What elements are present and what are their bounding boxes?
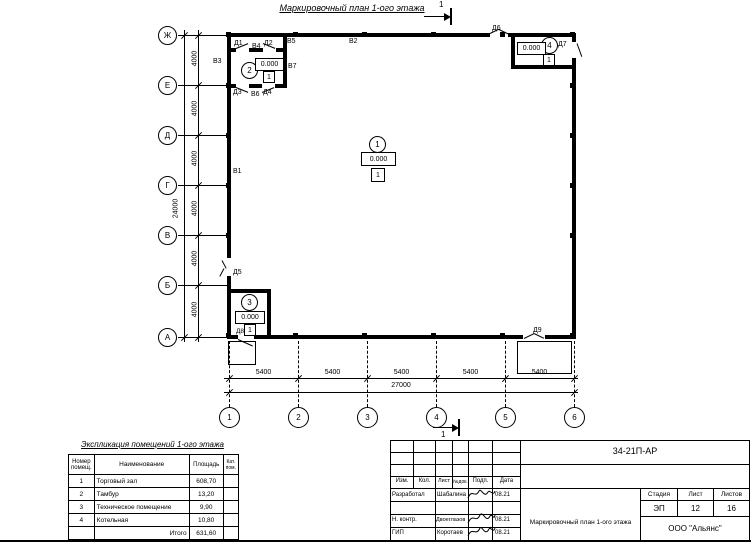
wall-tech-right xyxy=(267,289,271,339)
axis-circle-1: 1 xyxy=(219,407,240,428)
date-1: 08.21 xyxy=(495,517,510,523)
col-izm: Изм. xyxy=(391,478,413,484)
row-cat xyxy=(223,501,238,514)
axis-line-d xyxy=(178,135,227,136)
row-cat xyxy=(223,475,238,488)
column-marker xyxy=(570,233,575,238)
role-0: Разработал xyxy=(392,492,425,498)
row-area: 9,90 xyxy=(189,501,223,514)
room-elevation-1: 0.000 xyxy=(361,152,396,166)
col-kol: Кол. xyxy=(414,478,435,484)
column-marker xyxy=(570,333,575,338)
axis-ext-4 xyxy=(436,341,437,407)
axis-circle-g: Г xyxy=(158,176,177,195)
total-empty xyxy=(69,527,95,540)
tb-line xyxy=(640,516,750,517)
company: ООО "Альянс" xyxy=(641,524,749,533)
door-gap-d1 xyxy=(236,48,249,52)
dim-4000: 4000 xyxy=(192,147,199,171)
col-num: Номер помещ. xyxy=(69,455,95,475)
column-marker xyxy=(362,32,367,37)
tb-line xyxy=(390,464,750,465)
axis-ext-6 xyxy=(574,341,575,407)
row-num: 3 xyxy=(69,501,95,514)
row-name: Котельная xyxy=(94,514,189,527)
column-marker xyxy=(570,32,575,37)
axis-circle-4: 4 xyxy=(426,407,447,428)
dim-5400: 5400 xyxy=(527,369,552,376)
tb-line xyxy=(390,476,520,477)
axis-ext-3 xyxy=(367,341,368,407)
col-area: Площадь xyxy=(189,455,223,475)
mark-v4: В4 xyxy=(252,43,261,51)
axis-line-b xyxy=(178,285,227,286)
column-marker xyxy=(362,333,367,338)
dim-line-bottom-inner xyxy=(224,378,578,379)
tb-line xyxy=(390,440,750,441)
axis-line-e xyxy=(178,85,227,86)
mark-v5: В5 xyxy=(287,38,296,46)
axis-circle-3: 3 xyxy=(357,407,378,428)
room-floor-2: 1 xyxy=(263,71,275,83)
section-label-top: 1 xyxy=(439,1,443,9)
row-name: Торговый зал xyxy=(94,475,189,488)
row-area: 13,20 xyxy=(189,488,223,501)
doc-number: 34-21П-АР xyxy=(521,446,749,456)
row-area: 608,70 xyxy=(189,475,223,488)
axis-ext-5 xyxy=(505,341,506,407)
tb-line xyxy=(435,440,436,541)
plan-title: Маркировочный план 1-ого этажа xyxy=(262,3,442,13)
axis-circle-a: А xyxy=(158,328,177,347)
tb-drawing-title: Маркировочный план 1-ого этажа xyxy=(522,519,639,526)
axis-circle-b: Б xyxy=(158,276,177,295)
mark-d7: Д7 xyxy=(558,41,567,49)
dim-4000: 4000 xyxy=(192,97,199,121)
dim-4000: 4000 xyxy=(192,298,199,322)
section-bar-top xyxy=(450,8,452,25)
room-floor-1: 1 xyxy=(371,168,385,182)
mark-d4: Д4 xyxy=(263,89,272,97)
mark-v2: В2 xyxy=(349,38,358,46)
axis-ext-1 xyxy=(229,341,230,407)
tb-line xyxy=(390,514,520,515)
room-floor-3: 1 xyxy=(244,324,256,336)
col-name: Наименование xyxy=(94,455,189,475)
axis-circle-e: Е xyxy=(158,76,177,95)
tb-line xyxy=(749,440,750,541)
total-label: Итого xyxy=(94,527,189,540)
dim-line-bottom-outer xyxy=(224,392,578,393)
date-2: 08.21 xyxy=(495,530,510,536)
wall-tech-top xyxy=(227,289,271,293)
column-marker xyxy=(431,333,436,338)
axis-line-v xyxy=(178,235,227,236)
tb-line xyxy=(390,527,520,528)
column-marker xyxy=(431,32,436,37)
sheet-label: Лист xyxy=(678,491,713,498)
axis-circle-zh: Ж xyxy=(158,26,177,45)
name-1: Двоеглазов xyxy=(436,517,465,523)
frame-bottom xyxy=(0,540,751,542)
row-num: 4 xyxy=(69,514,95,527)
room-floor-4: 1 xyxy=(543,54,555,66)
axis-circle-6: 6 xyxy=(564,407,585,428)
column-marker xyxy=(500,333,505,338)
tb-line xyxy=(390,440,391,541)
column-marker xyxy=(500,32,505,37)
door-gap-d7 xyxy=(572,42,576,58)
role-2: ГИП xyxy=(392,530,404,536)
col-data: Дата xyxy=(493,478,520,484)
mark-v3: В3 xyxy=(213,58,222,66)
mark-d8: Д8 xyxy=(236,328,244,336)
room-number-3: 3 xyxy=(241,294,258,311)
wall-boiler-left xyxy=(511,33,515,69)
dim-4000: 4000 xyxy=(192,197,199,221)
column-marker xyxy=(570,183,575,188)
room-number-1: 1 xyxy=(369,136,386,153)
stage-label: Стадия xyxy=(641,491,677,498)
mark-d1: Д1 xyxy=(234,40,243,48)
section-label-bottom: 1 xyxy=(441,431,445,439)
row-name: Техническое помещение xyxy=(94,501,189,514)
mark-d3: Д3 xyxy=(233,89,242,97)
axis-circle-v: В xyxy=(158,226,177,245)
axis-ext-2 xyxy=(298,341,299,407)
row-name: Тамбур xyxy=(94,488,189,501)
mark-d6: Д6 xyxy=(492,25,501,33)
tb-line xyxy=(390,488,750,489)
door-leaf-d7 xyxy=(577,43,583,56)
row-area: 10,80 xyxy=(189,514,223,527)
column-marker xyxy=(293,32,298,37)
stage-value: ЭП xyxy=(641,504,677,513)
porch-left xyxy=(228,341,256,365)
total-value: 631,60 xyxy=(189,527,223,540)
mark-v1: В1 xyxy=(233,168,242,176)
name-0: Шабалина xyxy=(437,492,466,498)
column-marker xyxy=(293,333,298,338)
total-cat xyxy=(223,527,238,540)
date-0: 08.21 xyxy=(495,492,510,498)
axis-circle-d: Д xyxy=(158,126,177,145)
col-podp: Подп. xyxy=(469,478,492,484)
explication-title: Экспликация помещений 1-ого этажа xyxy=(70,440,235,449)
dim-24000: 24000 xyxy=(173,193,180,225)
row-num: 1 xyxy=(69,475,95,488)
dim-5400: 5400 xyxy=(458,369,483,376)
sheets-value: 16 xyxy=(714,504,749,513)
room-elevation-2: 0.000 xyxy=(255,58,284,71)
drawing-sheet: Маркировочный план 1-ого этажа 1 xyxy=(0,0,751,547)
signature xyxy=(466,487,496,501)
door-gap-d5 xyxy=(227,258,231,276)
tb-line xyxy=(390,452,520,453)
mark-d2: Д2 xyxy=(264,40,273,48)
room-elevation-3: 0.000 xyxy=(235,311,265,324)
wall-top xyxy=(227,33,576,37)
dim-4000: 4000 xyxy=(192,47,199,71)
axis-circle-5: 5 xyxy=(495,407,516,428)
column-marker xyxy=(570,83,575,88)
break-d5-icon xyxy=(219,268,224,276)
row-cat xyxy=(223,514,238,527)
role-1: Н. контр. xyxy=(392,517,417,523)
dim-4000: 4000 xyxy=(192,247,199,271)
dim-27000: 27000 xyxy=(387,382,415,389)
mark-v6: В6 xyxy=(251,91,260,99)
mark-d9: Д9 xyxy=(533,327,542,335)
col-cat: Кат. пом. xyxy=(223,455,238,475)
axis-line-g xyxy=(178,185,227,186)
sheets-label: Листов xyxy=(714,491,749,498)
axis-circle-2: 2 xyxy=(288,407,309,428)
dim-5400: 5400 xyxy=(251,369,276,376)
explication-table: Номер помещ. Наименование Площадь Кат. п… xyxy=(68,454,239,540)
break-d5-icon xyxy=(222,260,227,268)
tb-line xyxy=(390,501,520,502)
col-list: Лист xyxy=(436,478,452,484)
tb-line xyxy=(640,500,750,501)
signature xyxy=(466,524,496,539)
dim-line-left-outer xyxy=(184,30,185,342)
dim-5400: 5400 xyxy=(389,369,414,376)
room-elevation-4: 0.000 xyxy=(517,42,546,55)
row-num: 2 xyxy=(69,488,95,501)
row-cat xyxy=(223,488,238,501)
sheet-value: 12 xyxy=(678,504,713,513)
name-2: Коротаев xyxy=(437,530,463,536)
col-ndok: №док. xyxy=(453,479,468,485)
column-marker xyxy=(570,133,575,138)
mark-d5: Д5 xyxy=(233,269,242,277)
section-bar-bottom xyxy=(458,419,460,436)
mark-v7: В7 xyxy=(288,63,297,71)
dim-5400: 5400 xyxy=(320,369,345,376)
